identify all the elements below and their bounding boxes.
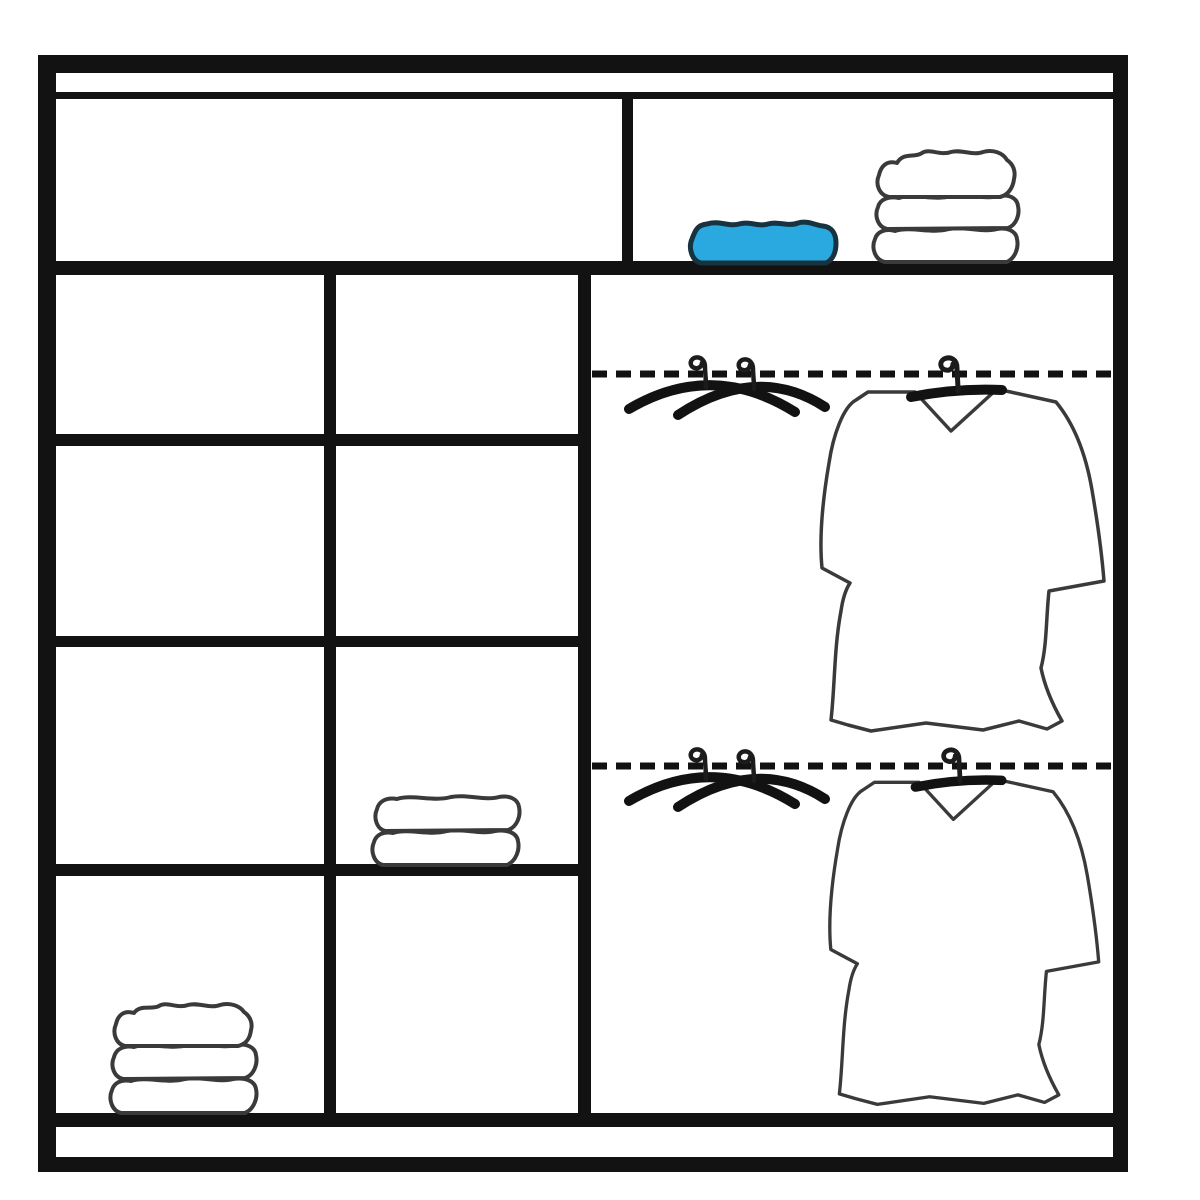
white-towel-stack-top-shelf <box>873 151 1018 262</box>
shelf-row-line-1 <box>56 434 578 446</box>
towel-fold <box>114 1004 251 1046</box>
top-shelf-divider <box>622 99 633 261</box>
towel-fold <box>110 1078 256 1113</box>
frame-top-bar <box>38 55 1128 73</box>
hanging-garment-top <box>821 358 1104 731</box>
frame-bottom-bar <box>38 1157 1128 1172</box>
towel-fold <box>876 195 1018 229</box>
top-panel-line <box>56 92 1113 99</box>
towel-fold <box>375 796 519 831</box>
hanging-section <box>592 357 1113 1104</box>
left-grid-items <box>110 796 519 1113</box>
towel-fold <box>873 228 1017 262</box>
towel-fold <box>372 830 518 865</box>
empty-hangers-bottom-rail <box>629 749 825 807</box>
white-towel-stack-bottom <box>110 1004 256 1113</box>
frame-left-bar <box>38 55 56 1172</box>
shelf-row-line-2 <box>56 636 578 647</box>
bottom-plinth-line <box>56 1113 1113 1127</box>
grid-hanging-divider <box>578 275 591 1113</box>
empty-hangers-top-rail <box>629 357 825 415</box>
top-shelf-items <box>690 151 1018 263</box>
folded-towel-two-folds <box>372 796 519 865</box>
towel-fold <box>112 1044 256 1079</box>
hanging-garment-bottom <box>830 750 1099 1104</box>
wardrobe-interior-diagram <box>0 0 1200 1200</box>
blue-folded-towel <box>690 222 836 263</box>
towel-fold <box>877 151 1014 197</box>
frame-right-bar <box>1113 55 1128 1172</box>
grid-column-divider <box>324 275 336 1113</box>
